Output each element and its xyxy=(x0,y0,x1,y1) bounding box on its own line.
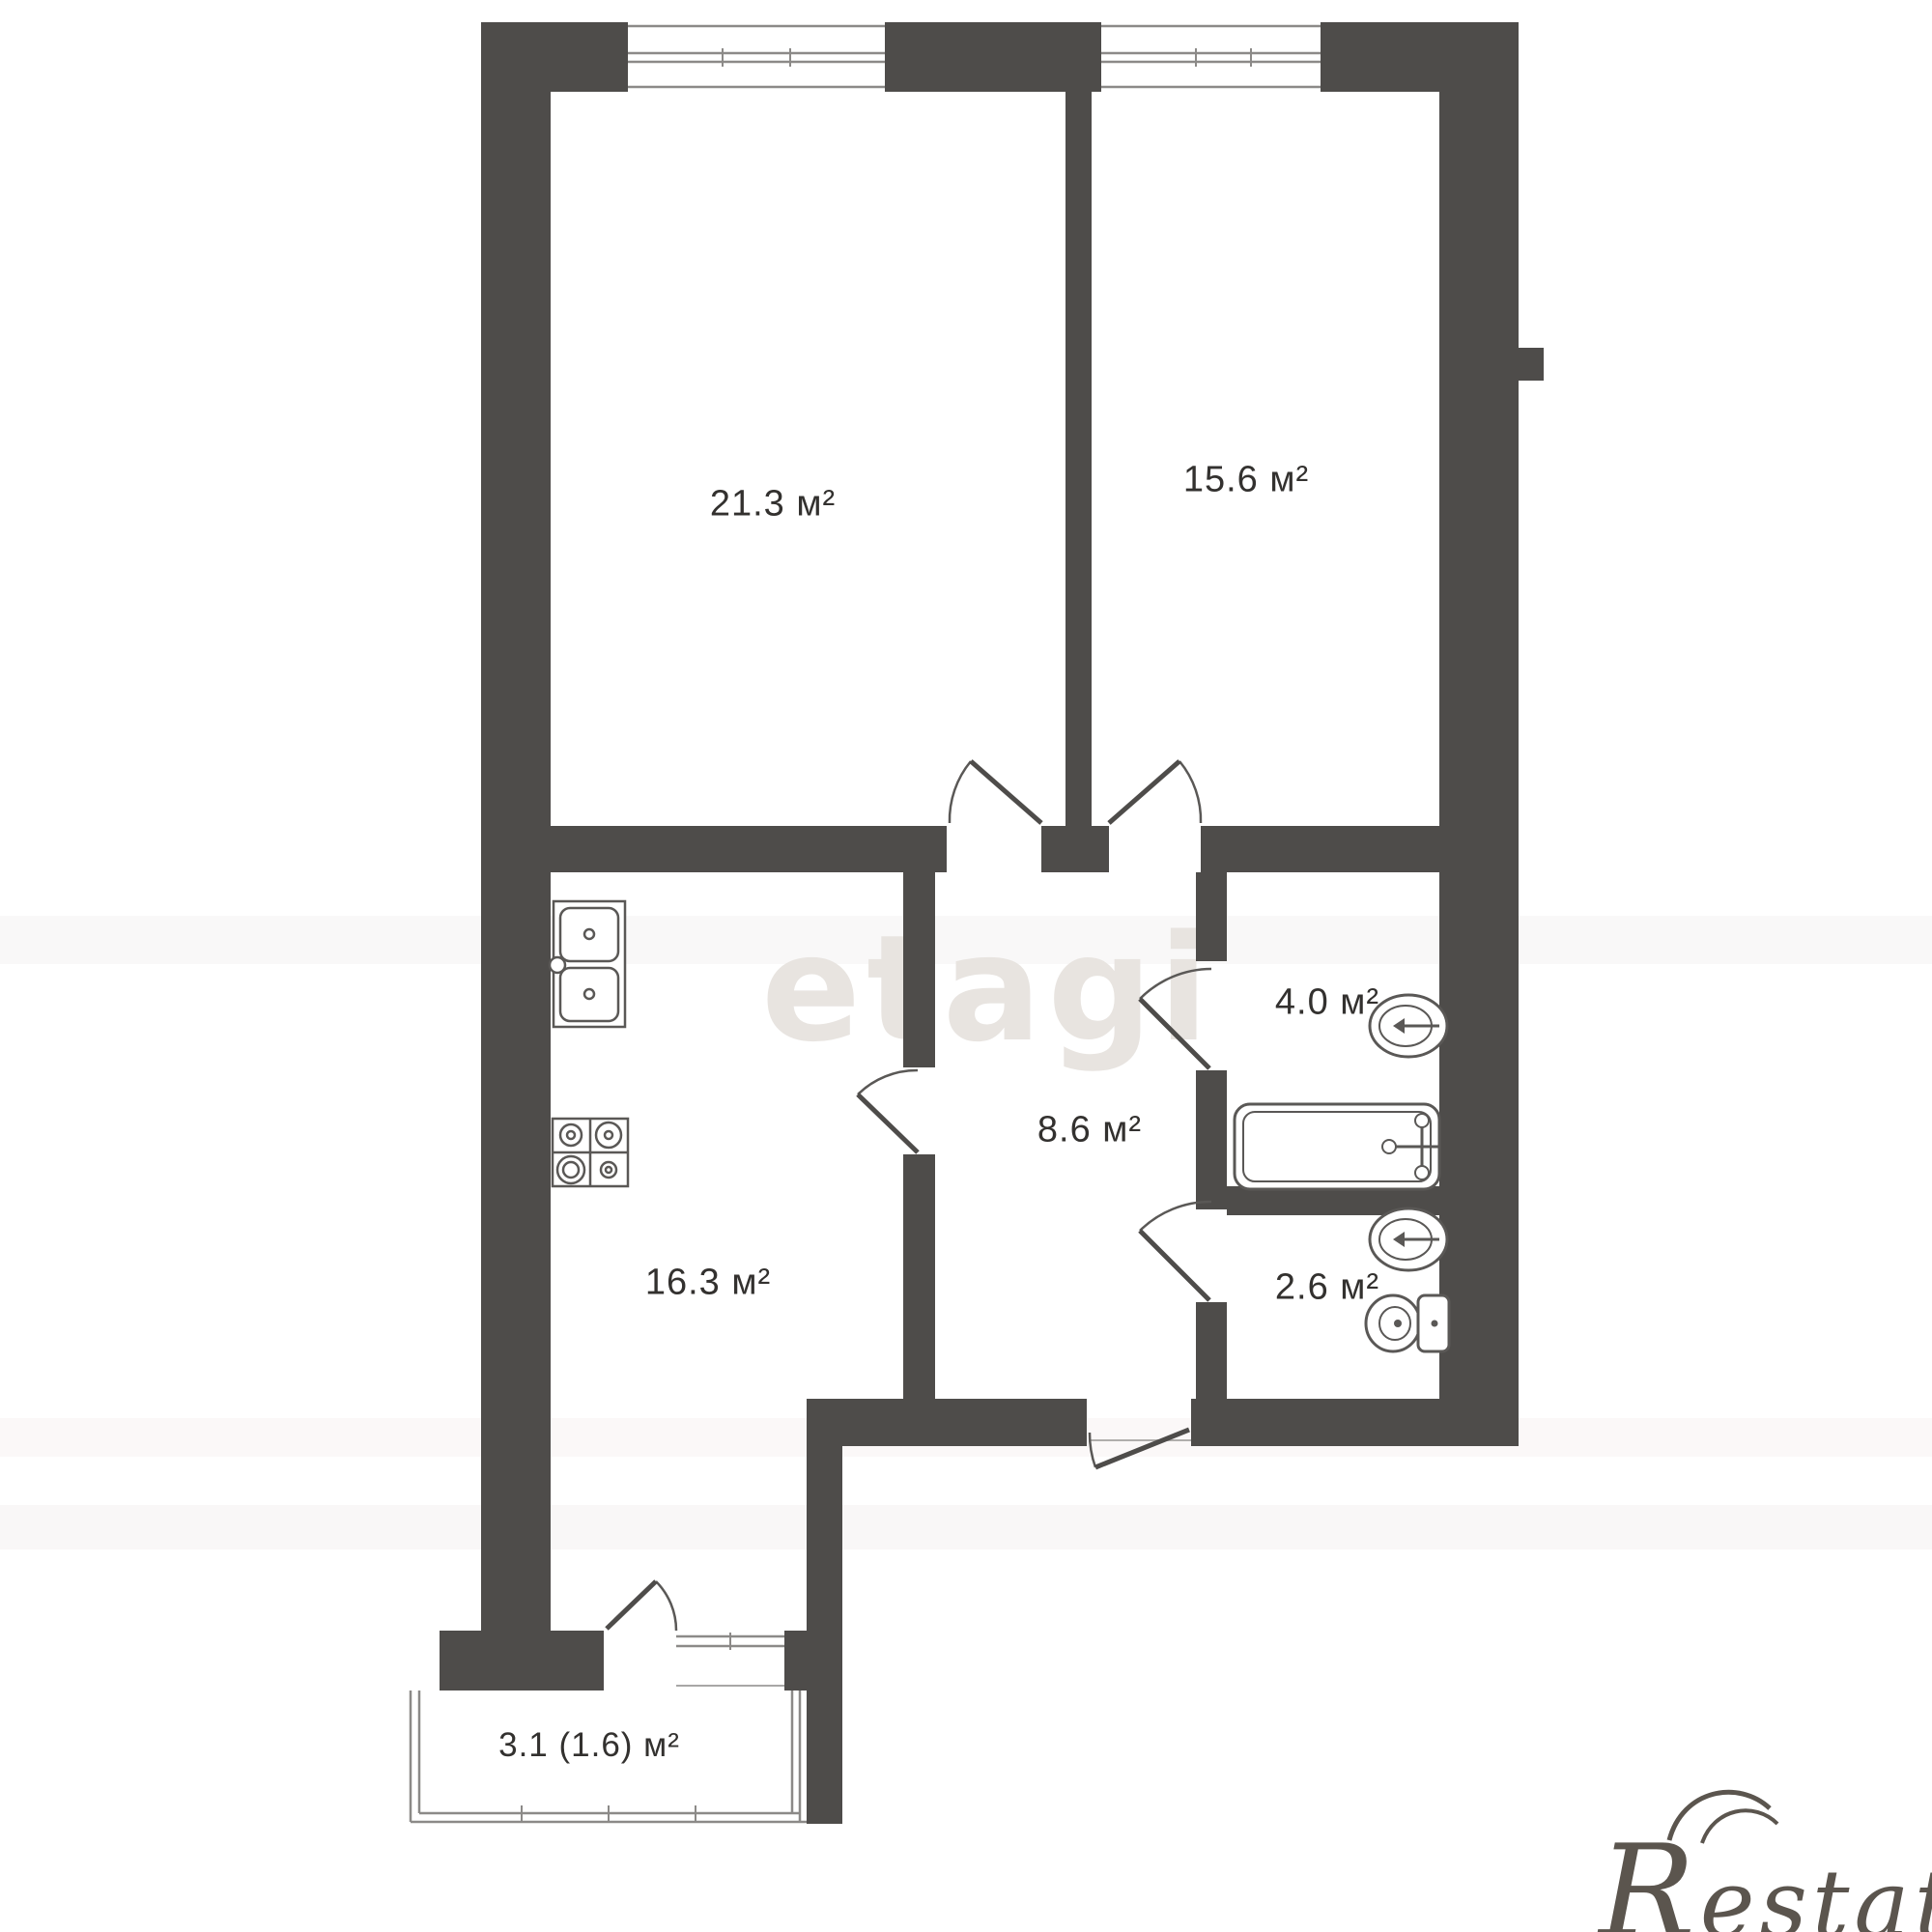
washbasin-icon-bathroom xyxy=(1370,995,1447,1057)
washbasin-icon-toilet xyxy=(1370,1208,1447,1270)
room-label-kitchen: 16.3 м² xyxy=(645,1263,771,1304)
room-label-balcony: 3.1 (1.6) м² xyxy=(498,1726,680,1765)
window-living-icon xyxy=(628,26,885,87)
room-label-living: 21.3 м² xyxy=(710,484,836,526)
bathtub-icon xyxy=(1235,1104,1439,1189)
entrance-door xyxy=(1090,1430,1191,1467)
toilet-door xyxy=(1140,1202,1211,1300)
room-label-bedroom: 15.6 м² xyxy=(1183,460,1309,501)
restate-watermark: Restate xyxy=(1599,1826,1932,1932)
bathroom-door xyxy=(1140,969,1211,1068)
balcony-door xyxy=(607,1581,676,1631)
kitchen-sink-icon xyxy=(550,901,625,1027)
floor-plan: etagi xyxy=(0,0,1932,1932)
living-room-door xyxy=(950,761,1041,823)
kitchen-door xyxy=(858,1070,918,1152)
window-bedroom-icon xyxy=(1101,26,1321,87)
stove-icon xyxy=(553,1119,628,1186)
room-label-hallway: 8.6 м² xyxy=(1037,1110,1142,1151)
room-label-bathroom: 4.0 м² xyxy=(1275,982,1379,1024)
room-label-toilet: 2.6 м² xyxy=(1275,1267,1379,1309)
bedroom-door xyxy=(1109,761,1201,823)
window-kitchen-icon xyxy=(676,1633,784,1686)
